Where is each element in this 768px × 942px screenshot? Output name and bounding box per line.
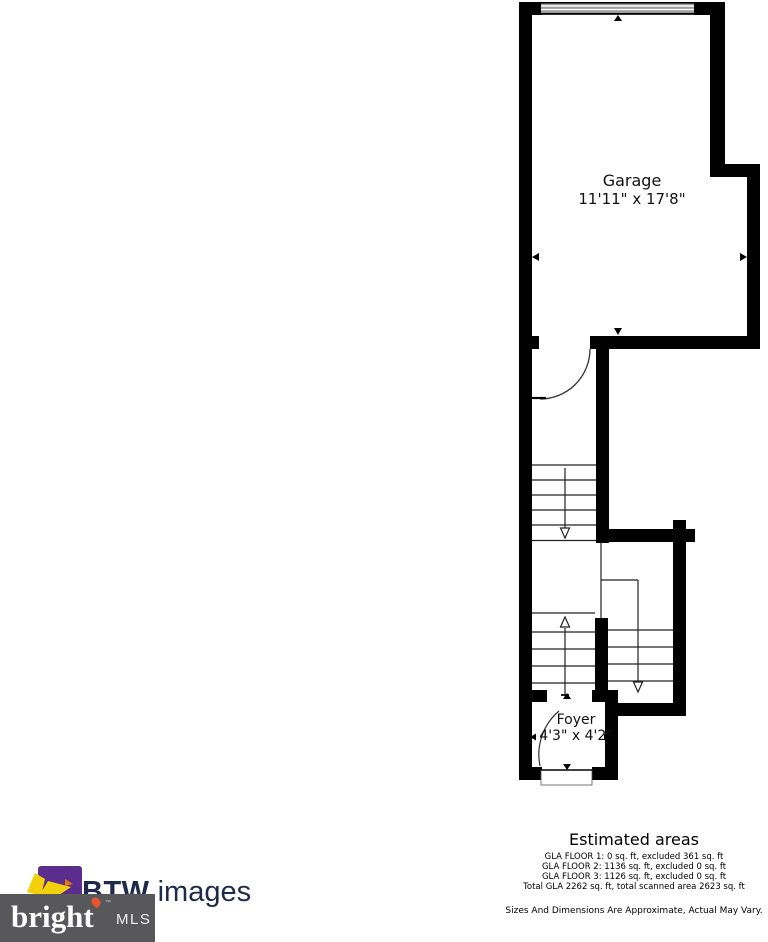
disclaimer-text: Sizes And Dimensions Are Approximate, Ac…: [500, 906, 768, 916]
wall-segment: [673, 520, 686, 716]
wall-segment: [519, 2, 542, 15]
gla-total: Total GLA 2262 sq. ft, total scanned are…: [500, 882, 768, 892]
room-dimensions: 11'11" x 17'8": [532, 190, 732, 208]
floor-plan-page: Garage 11'11" x 17'8" Foyer 4'3" x 4'2" …: [0, 0, 768, 942]
gla-floor-2: GLA FLOOR 2: 1136 sq. ft, excluded 0 sq.…: [500, 862, 768, 872]
wall-segment: [596, 336, 609, 543]
tick-garage-bottom: [614, 328, 622, 335]
tick-garage-left: [532, 253, 539, 261]
stair-direction-arrow-down: [634, 682, 643, 692]
wall-segment: [747, 164, 760, 349]
stair-direction-arrow-down: [561, 528, 570, 538]
tick-foyer-bottom: [563, 764, 571, 770]
bright-wordmark: bright: [11, 900, 94, 934]
mls-text: MLS: [116, 911, 151, 928]
bright-mls-logo: bright ™ MLS: [0, 894, 155, 942]
floor-plan-drawing: [0, 0, 768, 942]
tick-garage-top: [614, 15, 622, 21]
room-name: Foyer: [531, 712, 621, 728]
wall-segment: [519, 767, 542, 780]
walls: [519, 2, 760, 780]
images-text: images: [150, 876, 252, 908]
wall-segment: [590, 336, 760, 349]
wall-segment: [595, 618, 608, 702]
wall-segment: [592, 767, 618, 780]
door-swing-arc: [540, 349, 590, 399]
room-dimensions: 4'3" x 4'2": [531, 728, 621, 744]
garage-label: Garage 11'11" x 17'8": [532, 171, 732, 208]
garage-door-band: [541, 2, 694, 14]
wall-segment: [519, 336, 539, 349]
wall-segment: [519, 690, 547, 702]
logo-shape-accent: [65, 879, 73, 886]
wall-segment: [519, 2, 532, 780]
door-threshold: [541, 770, 592, 785]
room-name: Garage: [532, 171, 732, 190]
estimated-areas-title: Estimated areas: [500, 830, 768, 849]
wall-segment: [612, 703, 686, 716]
garage-door-edge: [541, 2, 694, 4]
stair-direction-arrow-up: [561, 617, 570, 627]
foyer-label: Foyer 4'3" x 4'2": [531, 712, 621, 744]
tick-garage-right: [740, 253, 747, 261]
garage-door-edge: [541, 13, 694, 15]
stairs-lower-right-flight: [601, 543, 673, 692]
wall-segment: [710, 2, 725, 177]
stairs-lower-left-flight: [532, 613, 595, 695]
stairs-upper-flight: [532, 465, 596, 541]
estimated-areas-block: Estimated areas GLA FLOOR 1: 0 sq. ft, e…: [500, 830, 768, 892]
gla-floor-3: GLA FLOOR 3: 1126 sq. ft, excluded 0 sq.…: [500, 872, 768, 882]
trademark-symbol: ™: [105, 900, 111, 906]
garage-door: [541, 2, 694, 15]
interior-door: [532, 349, 590, 399]
gla-floor-1: GLA FLOOR 1: 0 sq. ft, excluded 361 sq. …: [500, 852, 768, 862]
